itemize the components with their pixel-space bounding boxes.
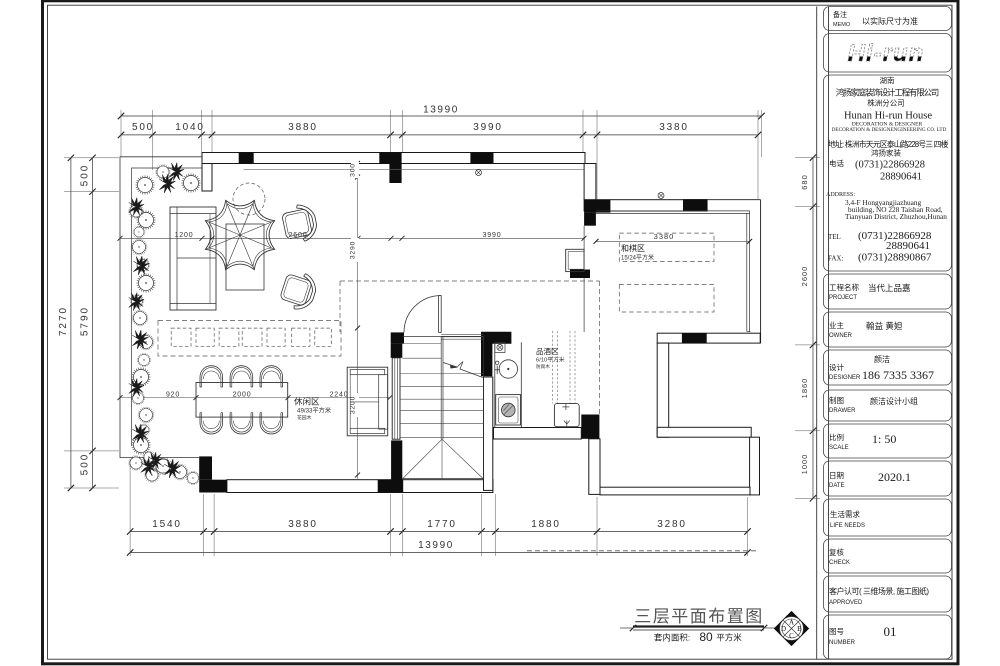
svg-text:680: 680 (800, 174, 809, 190)
svg-text:28890641: 28890641 (886, 240, 930, 252)
svg-text:1860: 1860 (800, 378, 809, 399)
svg-text:Tianyuan District, Zhuzhou,Hun: Tianyuan District, Zhuzhou,Hunan (845, 212, 947, 221)
svg-text:颜洁设计小组: 颜洁设计小组 (870, 396, 918, 406)
svg-text:日期: 日期 (829, 471, 844, 480)
svg-text:1540: 1540 (152, 519, 181, 530)
svg-text:Hunan Hi-run House: Hunan Hi-run House (844, 111, 932, 122)
svg-text:D: D (781, 625, 786, 633)
svg-text:图号: 图号 (829, 627, 844, 636)
svg-text:2600: 2600 (800, 266, 809, 287)
svg-text:3990: 3990 (483, 232, 502, 239)
svg-text:OWNER: OWNER (829, 333, 853, 339)
svg-text:(0731)28890867: (0731)28890867 (858, 252, 932, 264)
svg-text:13990: 13990 (418, 540, 454, 551)
svg-text:MEMO: MEMO (833, 22, 851, 28)
svg-text:3880: 3880 (288, 122, 317, 133)
svg-text:1000: 1000 (800, 454, 809, 475)
svg-text:2240: 2240 (330, 392, 349, 399)
svg-text:920: 920 (166, 392, 180, 399)
svg-text:SCALE: SCALE (829, 445, 849, 451)
svg-text:28890641: 28890641 (880, 172, 922, 183)
svg-text:电话: 电话 (829, 158, 844, 168)
svg-text:01: 01 (884, 624, 897, 639)
svg-text:B: B (797, 625, 802, 633)
svg-text:15/24平方米: 15/24平方米 (621, 254, 654, 262)
svg-text:当代上品嘉: 当代上品嘉 (868, 283, 911, 293)
svg-text:A: A (789, 619, 794, 627)
svg-text:业主: 业主 (829, 320, 844, 330)
svg-text:FAX:: FAX: (828, 255, 843, 263)
svg-text:TEL: TEL (828, 233, 841, 241)
svg-text:(0731)22866928: (0731)22866928 (855, 160, 925, 171)
svg-text:比例: 比例 (829, 432, 844, 442)
svg-text:鸿扬家庭装饰设计工程有限公司: 鸿扬家庭装饰设计工程有限公司 (836, 88, 939, 98)
svg-text:80: 80 (699, 630, 713, 644)
svg-text:颜洁: 颜洁 (874, 354, 890, 364)
svg-text:客户认可( 三维场景, 施工图纸): 客户认可( 三维场景, 施工图纸) (829, 586, 929, 596)
svg-text:制图: 制图 (829, 395, 844, 405)
svg-text:生活需求: 生活需求 (830, 509, 860, 519)
svg-text:DECORATION & DESIGNENGINEERING: DECORATION & DESIGNENGINEERING CO. LTD (832, 127, 947, 133)
svg-text:1880: 1880 (531, 519, 560, 530)
svg-text:500: 500 (80, 453, 91, 476)
svg-text:1: 50: 1: 50 (872, 432, 896, 446)
svg-text:工程名称: 工程名称 (829, 282, 859, 292)
svg-text:湖南: 湖南 (880, 75, 895, 85)
svg-text:3990: 3990 (473, 122, 502, 133)
svg-text:DRAWER: DRAWER (829, 408, 856, 414)
svg-text:3200: 3200 (350, 396, 357, 414)
svg-text:套内面积:: 套内面积: (654, 633, 690, 643)
svg-text:5790: 5790 (80, 306, 91, 336)
svg-text:地址: 株洲市天元区泰山路228号三 四楼: 地址: 株洲市天元区泰山路228号三 四楼 (828, 139, 949, 149)
svg-text:3290: 3290 (350, 241, 357, 259)
svg-text:鸿扬家装: 鸿扬家装 (871, 148, 901, 158)
svg-text:3880: 3880 (288, 519, 317, 530)
svg-text:3280: 3280 (657, 519, 686, 530)
svg-text:500: 500 (80, 164, 91, 187)
svg-text:LIFE NEEDS: LIFE NEEDS (830, 523, 865, 529)
svg-text:500: 500 (132, 122, 154, 133)
svg-text:13990: 13990 (423, 105, 459, 116)
svg-text:APPROVED: APPROVED (829, 600, 863, 606)
svg-text:1200: 1200 (175, 232, 194, 239)
svg-text:以实际尺寸为准: 以实际尺寸为准 (862, 16, 918, 26)
svg-text:PROJECT: PROJECT (829, 295, 857, 301)
svg-text:DATE: DATE (829, 483, 845, 489)
svg-text:6/10平方米: 6/10平方米 (536, 356, 565, 364)
svg-text:CHECK: CHECK (829, 560, 850, 566)
svg-text:备注: 备注 (833, 10, 847, 19)
svg-text:3380: 3380 (659, 122, 688, 133)
svg-text:186 7335 3367: 186 7335 3367 (862, 368, 934, 382)
svg-text:三层平面布置图: 三层平面布置图 (634, 607, 764, 626)
svg-text:花园木: 花园木 (297, 414, 312, 421)
svg-text:Hi-run: Hi-run (848, 40, 925, 67)
svg-text:1040: 1040 (175, 122, 204, 133)
svg-text:2020.1: 2020.1 (878, 470, 911, 484)
svg-text:300: 300 (350, 163, 357, 177)
svg-text:休闲区: 休闲区 (294, 397, 320, 407)
svg-text:7270: 7270 (58, 306, 69, 336)
svg-text:C: C (789, 632, 794, 640)
svg-text:复核: 复核 (829, 547, 844, 557)
svg-text:平方米: 平方米 (716, 633, 742, 643)
svg-text:1770: 1770 (427, 519, 456, 530)
svg-text:品酒区: 品酒区 (536, 347, 559, 356)
svg-text:设计: 设计 (829, 362, 844, 372)
svg-text:DESIGNER: DESIGNER (829, 375, 861, 381)
svg-text:49/33平方米: 49/33平方米 (297, 407, 331, 415)
svg-text:和棋区: 和棋区 (621, 243, 645, 253)
svg-text:2000: 2000 (233, 392, 252, 399)
svg-text:株洲分公司: 株洲分公司 (867, 98, 905, 108)
svg-text:3380: 3380 (654, 232, 675, 241)
svg-text:NUMBER: NUMBER (829, 640, 856, 646)
svg-text:翰益 黄妲: 翰益 黄妲 (866, 321, 903, 331)
svg-text:防腐木: 防腐木 (536, 363, 550, 370)
